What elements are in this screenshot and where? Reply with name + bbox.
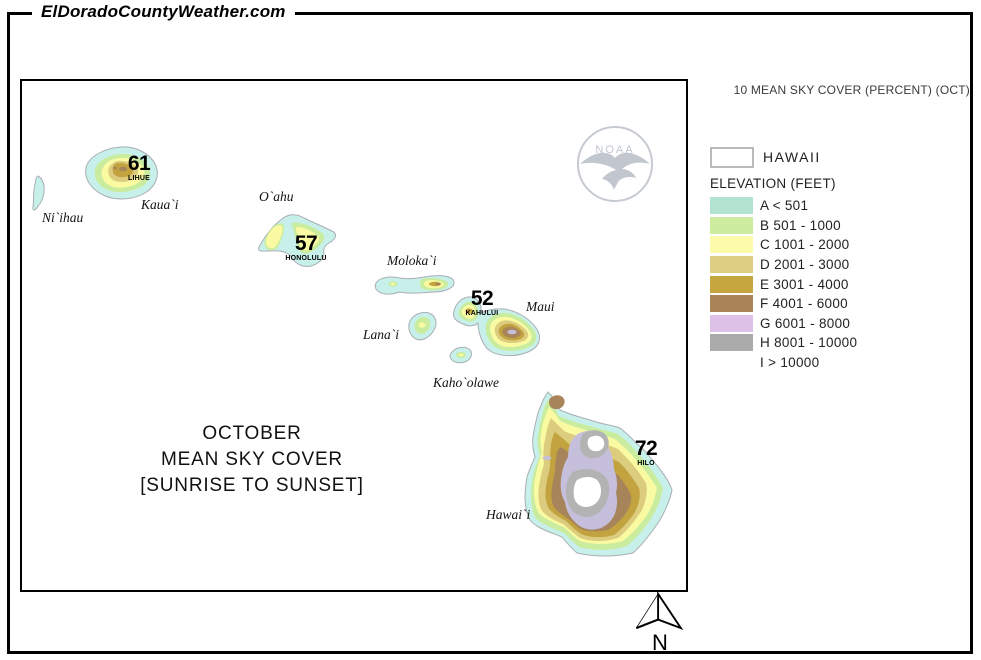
legend-item-D: D 2001 - 3000: [710, 255, 972, 275]
station-lihue: 61 LIHUE: [107, 153, 171, 182]
legend-swatch-E: [710, 276, 753, 293]
map-title-line2: MEAN SKY COVER: [82, 447, 422, 473]
legend-label-G: G 6001 - 8000: [760, 316, 850, 331]
legend-swatch-D: [710, 256, 753, 273]
elevation-legend: A < 501B 501 - 1000C 1001 - 2000D 2001 -…: [710, 196, 972, 372]
legend-item-F: F 4001 - 6000: [710, 294, 972, 314]
map-title-line3: [SUNRISE TO SUNSET]: [82, 473, 422, 499]
station-kahului-name: KAHULUI: [450, 310, 514, 317]
legend-panel: HAWAII ELEVATION (FEET) A < 501B 501 - 1…: [710, 145, 972, 372]
page: ElDoradoCountyWeather.com 10 MEAN SKY CO…: [0, 0, 981, 660]
legend-label-B: B 501 - 1000: [760, 218, 841, 233]
legend-swatch-C: [710, 236, 753, 253]
north-arrow-icon: [632, 592, 688, 630]
label-kahoolawe: Kaho`olawe: [433, 375, 499, 391]
map-frame: Ni`ihau Kaua`i O`ahu Moloka`i Lana`i Mau…: [20, 79, 688, 592]
legend-label-C: C 1001 - 2000: [760, 237, 849, 252]
label-maui: Maui: [526, 299, 555, 315]
legend-item-G: G 6001 - 8000: [710, 314, 972, 334]
legend-item-C: C 1001 - 2000: [710, 235, 972, 255]
legend-label-I: I > 10000: [760, 355, 819, 370]
station-honolulu: 57 HONOLULU: [274, 233, 338, 262]
station-kahului: 52 KAHULUI: [450, 288, 514, 317]
label-oahu: O`ahu: [259, 189, 294, 205]
legend-item-B: B 501 - 1000: [710, 216, 972, 236]
label-niihau: Ni`ihau: [42, 210, 83, 226]
north-arrow: N: [630, 592, 690, 654]
hawaii-region-label: HAWAII: [763, 149, 821, 165]
legend-region-row: HAWAII: [710, 145, 972, 169]
chart-corner-label: 10 MEAN SKY COVER (PERCENT) (OCT): [710, 83, 970, 97]
legend-label-F: F 4001 - 6000: [760, 296, 848, 311]
island-niihau: [33, 176, 44, 210]
site-brand: ElDoradoCountyWeather.com: [32, 2, 295, 22]
legend-label-A: A < 501: [760, 198, 808, 213]
map-title-line1: OCTOBER: [82, 421, 422, 447]
station-honolulu-value: 57: [274, 233, 338, 254]
legend-section-title: ELEVATION (FEET): [710, 176, 972, 193]
station-kahului-value: 52: [450, 288, 514, 309]
legend-swatch-H: [710, 334, 753, 351]
legend-item-H: H 8001 - 10000: [710, 333, 972, 353]
legend-label-D: D 2001 - 3000: [760, 257, 849, 272]
legend-item-I: I > 10000: [710, 353, 972, 373]
legend-swatch-I: [710, 354, 753, 371]
label-hawaii: Hawai`i: [486, 507, 530, 523]
legend-swatch-A: [710, 197, 753, 214]
map-title: OCTOBER MEAN SKY COVER [SUNRISE TO SUNSE…: [82, 421, 422, 499]
label-lanai: Lana`i: [363, 327, 399, 343]
legend-label-H: H 8001 - 10000: [760, 335, 857, 350]
legend-label-E: E 3001 - 4000: [760, 277, 849, 292]
legend-item-A: A < 501: [710, 196, 972, 216]
station-hilo-name: HILO: [614, 460, 678, 467]
svg-text:NOAA: NOAA: [595, 144, 634, 156]
station-hilo: 72 HILO: [614, 438, 678, 467]
hawaii-region-swatch: [710, 147, 754, 168]
station-lihue-value: 61: [107, 153, 171, 174]
station-lihue-name: LIHUE: [107, 175, 171, 182]
label-kauai: Kaua`i: [141, 197, 179, 213]
north-label: N: [630, 632, 690, 654]
label-molokai: Moloka`i: [387, 253, 437, 269]
station-honolulu-name: HONOLULU: [274, 255, 338, 262]
legend-item-E: E 3001 - 4000: [710, 274, 972, 294]
legend-swatch-B: [710, 217, 753, 234]
legend-swatch-F: [710, 295, 753, 312]
noaa-logo: NOAA: [575, 124, 655, 204]
legend-swatch-G: [710, 315, 753, 332]
station-hilo-value: 72: [614, 438, 678, 459]
